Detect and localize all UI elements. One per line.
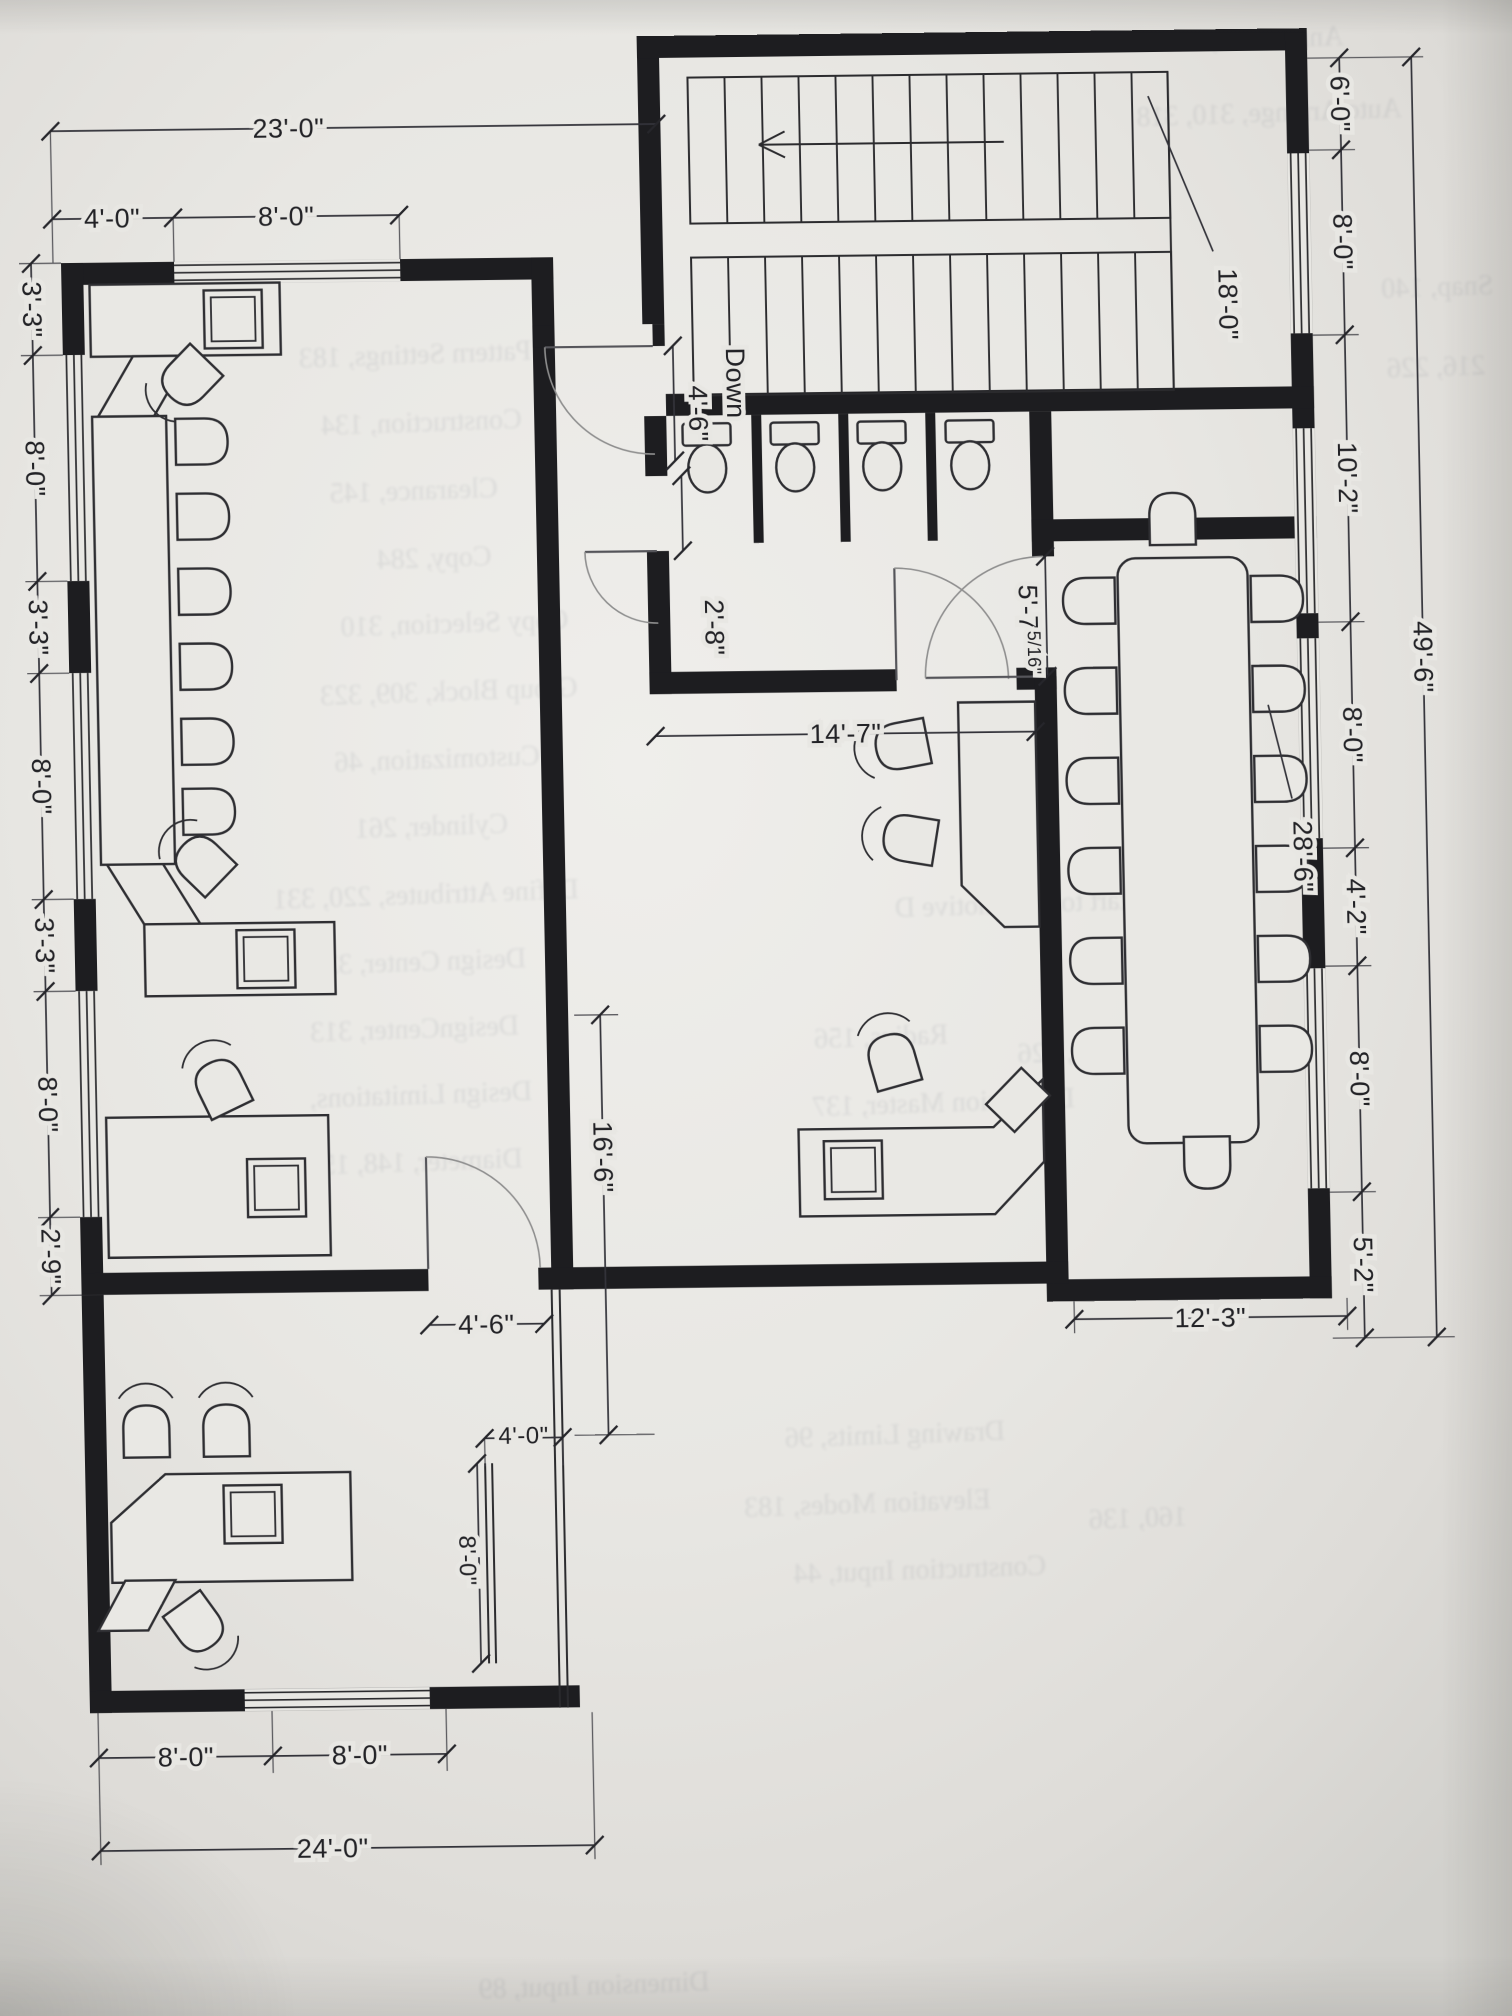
ghost-line: Design Center, 323 — [310, 943, 527, 982]
ghost-line: Copy, 284 — [376, 541, 492, 576]
dimension-label: 3'-3" — [29, 917, 60, 974]
dimension-label: 49'-6" — [1407, 621, 1438, 693]
dimension-label: 4'-0" — [84, 203, 141, 234]
dimension-label: 28'-6" — [1287, 820, 1318, 892]
dimension-label: 8'-0" — [258, 201, 315, 232]
dimension-label: 8'-0" — [26, 758, 57, 815]
dimension-label: 24'-0" — [297, 1833, 369, 1864]
ghost-line: Clearance, 145 — [329, 473, 498, 510]
floor-plan-scan: Pattern Settings, 183 Construction, 134 … — [0, 0, 1512, 2016]
ghost-line: 160, 136 — [1089, 1501, 1188, 1535]
desk — [92, 416, 175, 865]
dimension-label: 5'-2" — [1348, 1236, 1379, 1293]
dimension-label: 4'-6" — [683, 385, 714, 442]
dimension-label: 8'-0" — [157, 1742, 214, 1773]
ghost-line: Construction, 134 — [321, 404, 523, 442]
bottom-office — [93, 1381, 354, 1680]
ghost-line: Copy Selection, 310 — [340, 604, 569, 643]
ghost-line: 216, 226 — [1387, 350, 1486, 384]
ghost-line: Dimension Input, 89 — [478, 1966, 710, 2005]
computer-monitor — [236, 930, 295, 989]
computer-monitor — [204, 290, 263, 349]
stair-down-label: Down — [720, 347, 751, 418]
dimension-label: 8'-0" — [331, 1740, 388, 1771]
floor-plan: Down — [12, 27, 1465, 1867]
dimension-label: 10'-2" — [1332, 442, 1363, 514]
ghost-line: Auto Arrange, 310, 318 — [1136, 93, 1402, 133]
bathroom-south-door — [894, 567, 1008, 680]
dimension-label: 8'-0" — [453, 1535, 481, 1586]
ghost-line: Drawing Limits, 96 — [784, 1416, 1005, 1455]
dimension-label: 8'-0" — [1337, 706, 1368, 763]
stair-direction-arrow — [759, 129, 1005, 158]
ghost-line: Group Block, 309, 323 — [320, 672, 578, 712]
ghost-line: Cylinder, 261 — [355, 809, 509, 845]
dimension-label: 3'-3" — [16, 281, 47, 338]
conference-room — [1061, 491, 1315, 1190]
ghost-line: DesignCenter, 313 — [310, 1010, 520, 1048]
dimension-label: 4'-6" — [458, 1309, 515, 1340]
dimension-label: 8'-0" — [1327, 213, 1358, 270]
dimension-label: 2'-9" — [35, 1228, 66, 1285]
ghost-line: Customization, 46 — [334, 740, 540, 778]
middle-office — [790, 701, 1052, 1216]
open-office — [89, 282, 340, 1258]
dimension-label: 8'-0" — [32, 1076, 63, 1133]
dimension-label: 4'-0" — [498, 1422, 549, 1450]
toilet — [857, 421, 906, 491]
conference-table — [1117, 557, 1259, 1144]
dimension-label: 3'-3" — [23, 599, 54, 656]
toilet — [945, 420, 994, 490]
ghost-line: Pattern Settings, 183 — [298, 335, 531, 374]
dimension-label: 4'-2" — [1341, 878, 1372, 935]
dimension-label: 16'-6" — [587, 1121, 618, 1193]
dimension-label: 12'-3" — [1174, 1302, 1246, 1333]
hall-door — [545, 346, 655, 455]
desk — [958, 702, 1040, 928]
dimension-label: 14'-7" — [809, 718, 881, 749]
dimension-label: 6'-0" — [1325, 75, 1356, 132]
dimension-label: 8'-0" — [20, 440, 51, 497]
computer-monitor — [223, 1485, 282, 1544]
dimension-label: 2'-8" — [699, 599, 730, 656]
dimension-label: 5'-75/16" — [1013, 584, 1045, 674]
stairwell: Down — [687, 72, 1174, 419]
toilet — [770, 422, 819, 492]
dimension-label: 8'-0" — [1344, 1050, 1375, 1107]
ghost-line: Define Attributes, 220, 331 — [273, 874, 580, 916]
ghost-line: Snap, 140 — [1381, 270, 1494, 305]
computer-monitor — [824, 1141, 883, 1200]
dimension-label: 23'-0" — [252, 113, 324, 144]
ghost-line: Elevation Modes, 183 — [744, 1484, 991, 1524]
scanned-book-page: { "document": { "kind": "scanned floor p… — [0, 0, 1512, 2016]
ghost-line: Construction Input, 44 — [793, 1550, 1047, 1590]
computer-monitor — [247, 1158, 306, 1217]
dimension-label: 18'-0" — [1212, 268, 1243, 340]
ghost-line: Design Limitations, — [309, 1076, 532, 1115]
